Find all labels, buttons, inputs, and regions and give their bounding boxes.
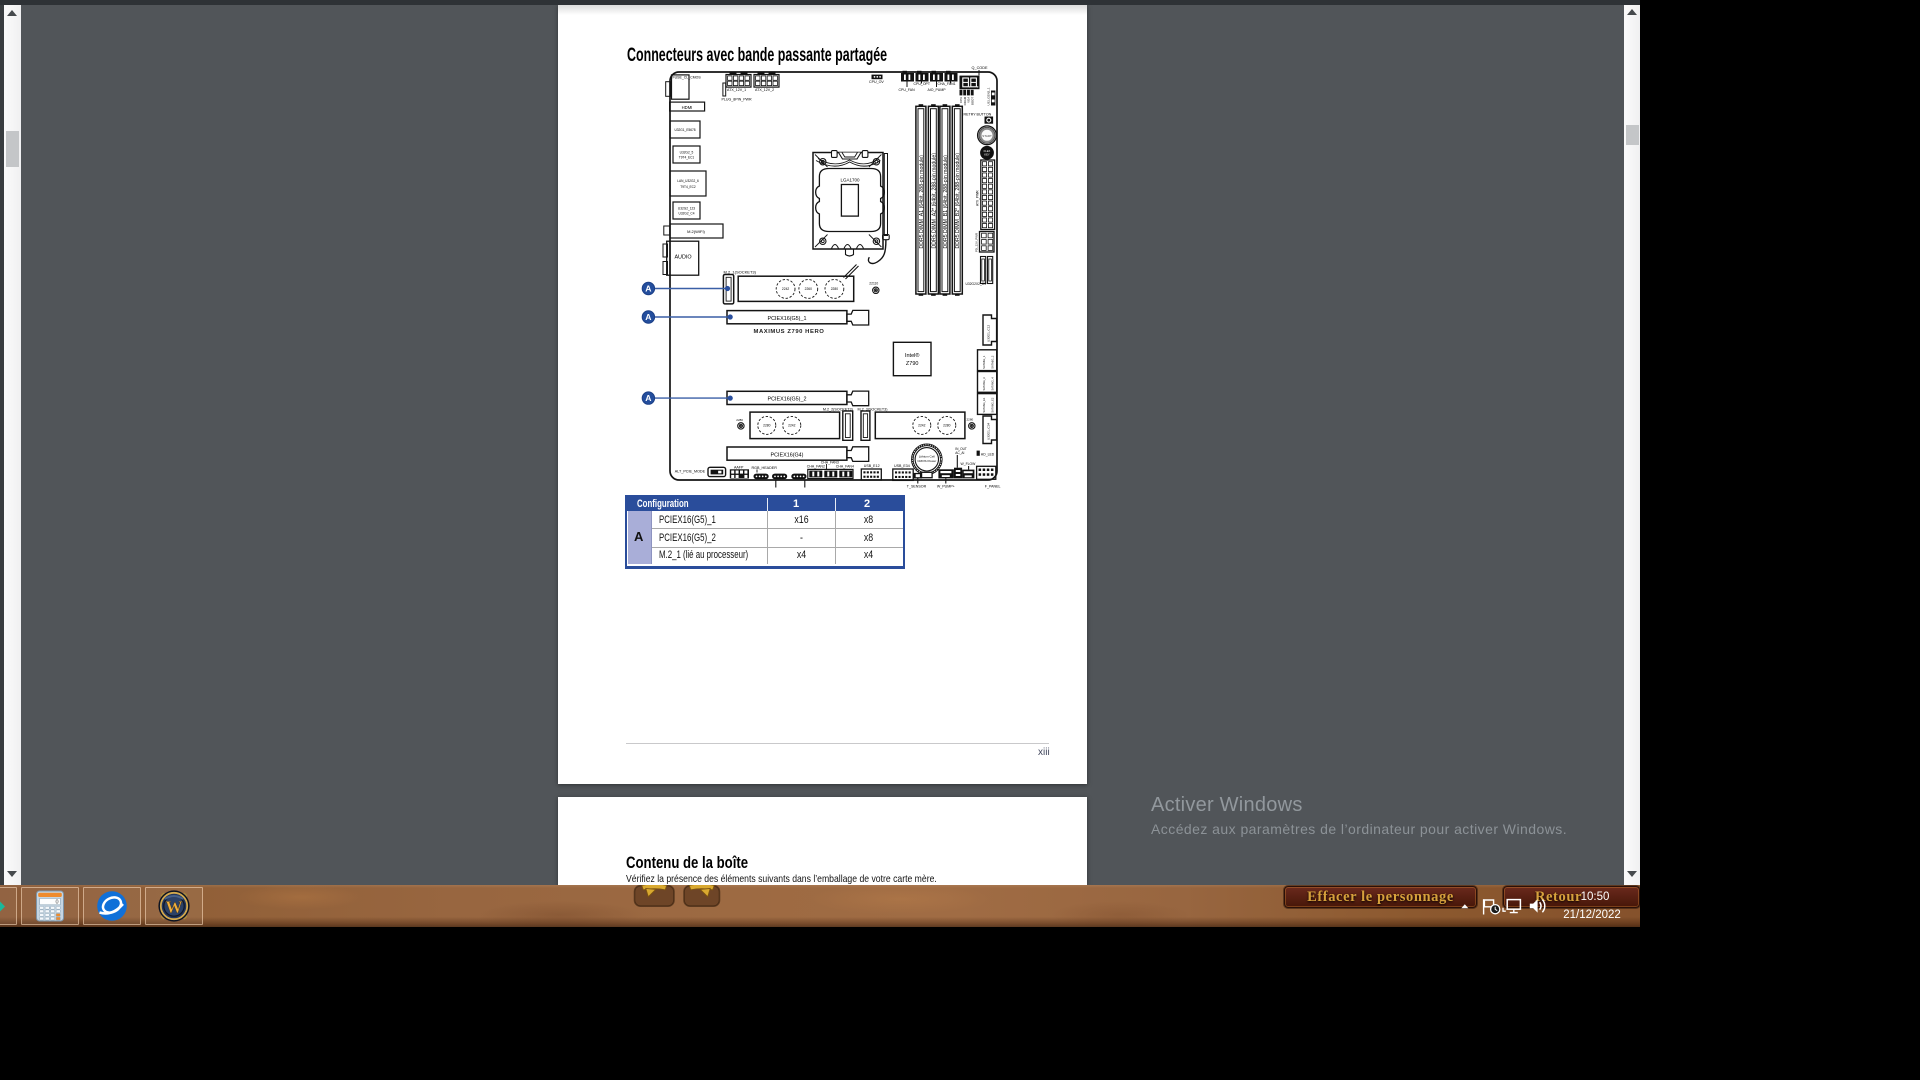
svg-text:PCIEX16(G5)_2: PCIEX16(G5)_2 bbox=[768, 397, 807, 403]
svg-text:CHA_FAN4: CHA_FAN4 bbox=[836, 464, 854, 468]
svg-text:U32G2_123: U32G2_123 bbox=[678, 207, 695, 211]
svg-text:T_SENSOR: T_SENSOR bbox=[907, 484, 927, 488]
svg-text:M.2(WIFI): M.2(WIFI) bbox=[687, 229, 705, 234]
svg-text:Intel®: Intel® bbox=[905, 352, 919, 359]
svg-text:CHA_FAN1: CHA_FAN1 bbox=[938, 82, 956, 86]
svg-text:ATX_PWR: ATX_PWR bbox=[976, 190, 980, 206]
svg-text:DDR5 DIMM_B2* (64bit, 288-pin: DDR5 DIMM_B2* (64bit, 288-pin module) bbox=[955, 153, 961, 249]
svg-text:M.2_1(SOCKET3): M.2_1(SOCKET3) bbox=[724, 269, 757, 274]
svg-text:RGB_HEADER: RGB_HEADER bbox=[752, 466, 778, 470]
svg-text:22110: 22110 bbox=[869, 281, 878, 285]
svg-text:AC_AI: AC_AI bbox=[955, 451, 964, 455]
svg-text:W_PUMP+: W_PUMP+ bbox=[937, 484, 955, 488]
svg-text:2280: 2280 bbox=[831, 287, 839, 291]
svg-text:SATA6G_E2: SATA6G_E2 bbox=[991, 397, 995, 412]
svg-text:Q_CODE: Q_CODE bbox=[972, 66, 989, 70]
svg-text:SATA6G_3: SATA6G_3 bbox=[982, 377, 986, 391]
svg-text:SATA6G_E1: SATA6G_E1 bbox=[982, 397, 986, 412]
svg-text:2280: 2280 bbox=[943, 424, 951, 428]
svg-text:FUSE_CL_CMOS: FUSE_CL_CMOS bbox=[673, 76, 702, 80]
svg-text:HD_LED: HD_LED bbox=[981, 452, 995, 456]
svg-text:DDR5 DIMM_A1 (64bit, 288-pin m: DDR5 DIMM_A1 (64bit, 288-pin module) bbox=[919, 155, 925, 249]
svg-text:PCIEX16(G4): PCIEX16(G4) bbox=[771, 452, 804, 458]
svg-text:CPU_OV: CPU_OV bbox=[869, 80, 884, 84]
svg-text:ATX_12V_2: ATX_12V_2 bbox=[755, 88, 774, 92]
svg-text:2280: 2280 bbox=[763, 424, 771, 428]
svg-text:PLUG_8PIN_PWR: PLUG_8PIN_PWR bbox=[722, 98, 753, 102]
svg-text:USB_E12: USB_E12 bbox=[864, 464, 880, 468]
svg-text:A: A bbox=[645, 393, 651, 403]
svg-text:LGA1700: LGA1700 bbox=[840, 178, 860, 183]
svg-text:BOOT: BOOT bbox=[970, 97, 974, 105]
svg-text:2242: 2242 bbox=[918, 424, 926, 428]
svg-text:F_PANEL: F_PANEL bbox=[985, 484, 1001, 488]
svg-text:AUDIO: AUDIO bbox=[674, 254, 691, 260]
svg-text:A: A bbox=[645, 312, 651, 322]
svg-text:CPU_FAN: CPU_FAN bbox=[899, 88, 916, 92]
svg-text:RETRY BUTTON: RETRY BUTTON bbox=[964, 112, 992, 116]
svg-text:ALT_PCIE_MODE: ALT_PCIE_MODE bbox=[675, 469, 706, 473]
svg-text:AIO_PUMP: AIO_PUMP bbox=[928, 88, 947, 92]
svg-text:MAXIMUS Z790 HERO: MAXIMUS Z790 HERO bbox=[754, 329, 825, 335]
svg-text:AAFP: AAFP bbox=[734, 465, 744, 469]
svg-text:CPU_OPT: CPU_OPT bbox=[914, 82, 931, 86]
svg-text:T9T4_EC2: T9T4_EC2 bbox=[680, 185, 696, 189]
svg-text:KEY: KEY bbox=[984, 152, 990, 156]
svg-text:PCIEX16(G5)_1: PCIEX16(G5)_1 bbox=[768, 316, 807, 322]
svg-text:PD_12V_PWR: PD_12V_PWR bbox=[975, 233, 979, 252]
svg-text:USB_E34: USB_E34 bbox=[894, 464, 910, 468]
svg-text:START: START bbox=[982, 134, 992, 138]
svg-text:SATA6G_4: SATA6G_4 bbox=[991, 377, 995, 391]
svg-text:2280: 2280 bbox=[736, 418, 743, 422]
svg-text:DDR5 DIMM_A2* (64bit, 288-pin: DDR5 DIMM_A2* (64bit, 288-pin module) bbox=[931, 153, 937, 249]
svg-text:Lithium Cell: Lithium Cell bbox=[919, 455, 935, 459]
svg-text:U32G1_C12: U32G1_C12 bbox=[987, 325, 991, 342]
svg-text:2242: 2242 bbox=[782, 287, 790, 291]
svg-text:U32G2_5: U32G2_5 bbox=[680, 151, 694, 155]
svg-text:LAN_U32G2_6: LAN_U32G2_6 bbox=[677, 179, 699, 183]
svg-text:W_FLOW: W_FLOW bbox=[961, 462, 977, 466]
svg-text:U32G2X2_C9: U32G2X2_C9 bbox=[966, 282, 987, 286]
svg-text:ATX_12V_1: ATX_12V_1 bbox=[727, 88, 746, 92]
svg-text:2280: 2280 bbox=[967, 418, 974, 422]
svg-text:HDMI: HDMI bbox=[682, 105, 693, 110]
svg-text:FLEX: FLEX bbox=[984, 149, 991, 153]
svg-text:A: A bbox=[645, 284, 651, 294]
svg-text:U32G1_E5678: U32G1_E5678 bbox=[674, 128, 695, 132]
svg-text:CHA_FAN2: CHA_FAN2 bbox=[807, 464, 825, 468]
svg-text:U32G2_C4: U32G2_C4 bbox=[679, 212, 695, 216]
svg-text:U32G1_C34: U32G1_C34 bbox=[987, 423, 991, 440]
svg-text:2242: 2242 bbox=[788, 424, 796, 428]
svg-text:SATA6G_1: SATA6G_1 bbox=[982, 355, 986, 369]
svg-text:DDR5 DIMM_B1 (64bit, 288-pin m: DDR5 DIMM_B1 (64bit, 288-pin module) bbox=[943, 155, 949, 249]
svg-text:SATA6G_2: SATA6G_2 bbox=[991, 355, 995, 369]
svg-text:T9T4_EC1: T9T4_EC1 bbox=[679, 156, 695, 160]
svg-text:2260: 2260 bbox=[805, 287, 813, 291]
svg-text:U32_GEN2_1: U32_GEN2_1 bbox=[987, 87, 991, 105]
svg-text:Z790: Z790 bbox=[906, 361, 919, 367]
svg-text:CMOS Power: CMOS Power bbox=[917, 459, 936, 463]
